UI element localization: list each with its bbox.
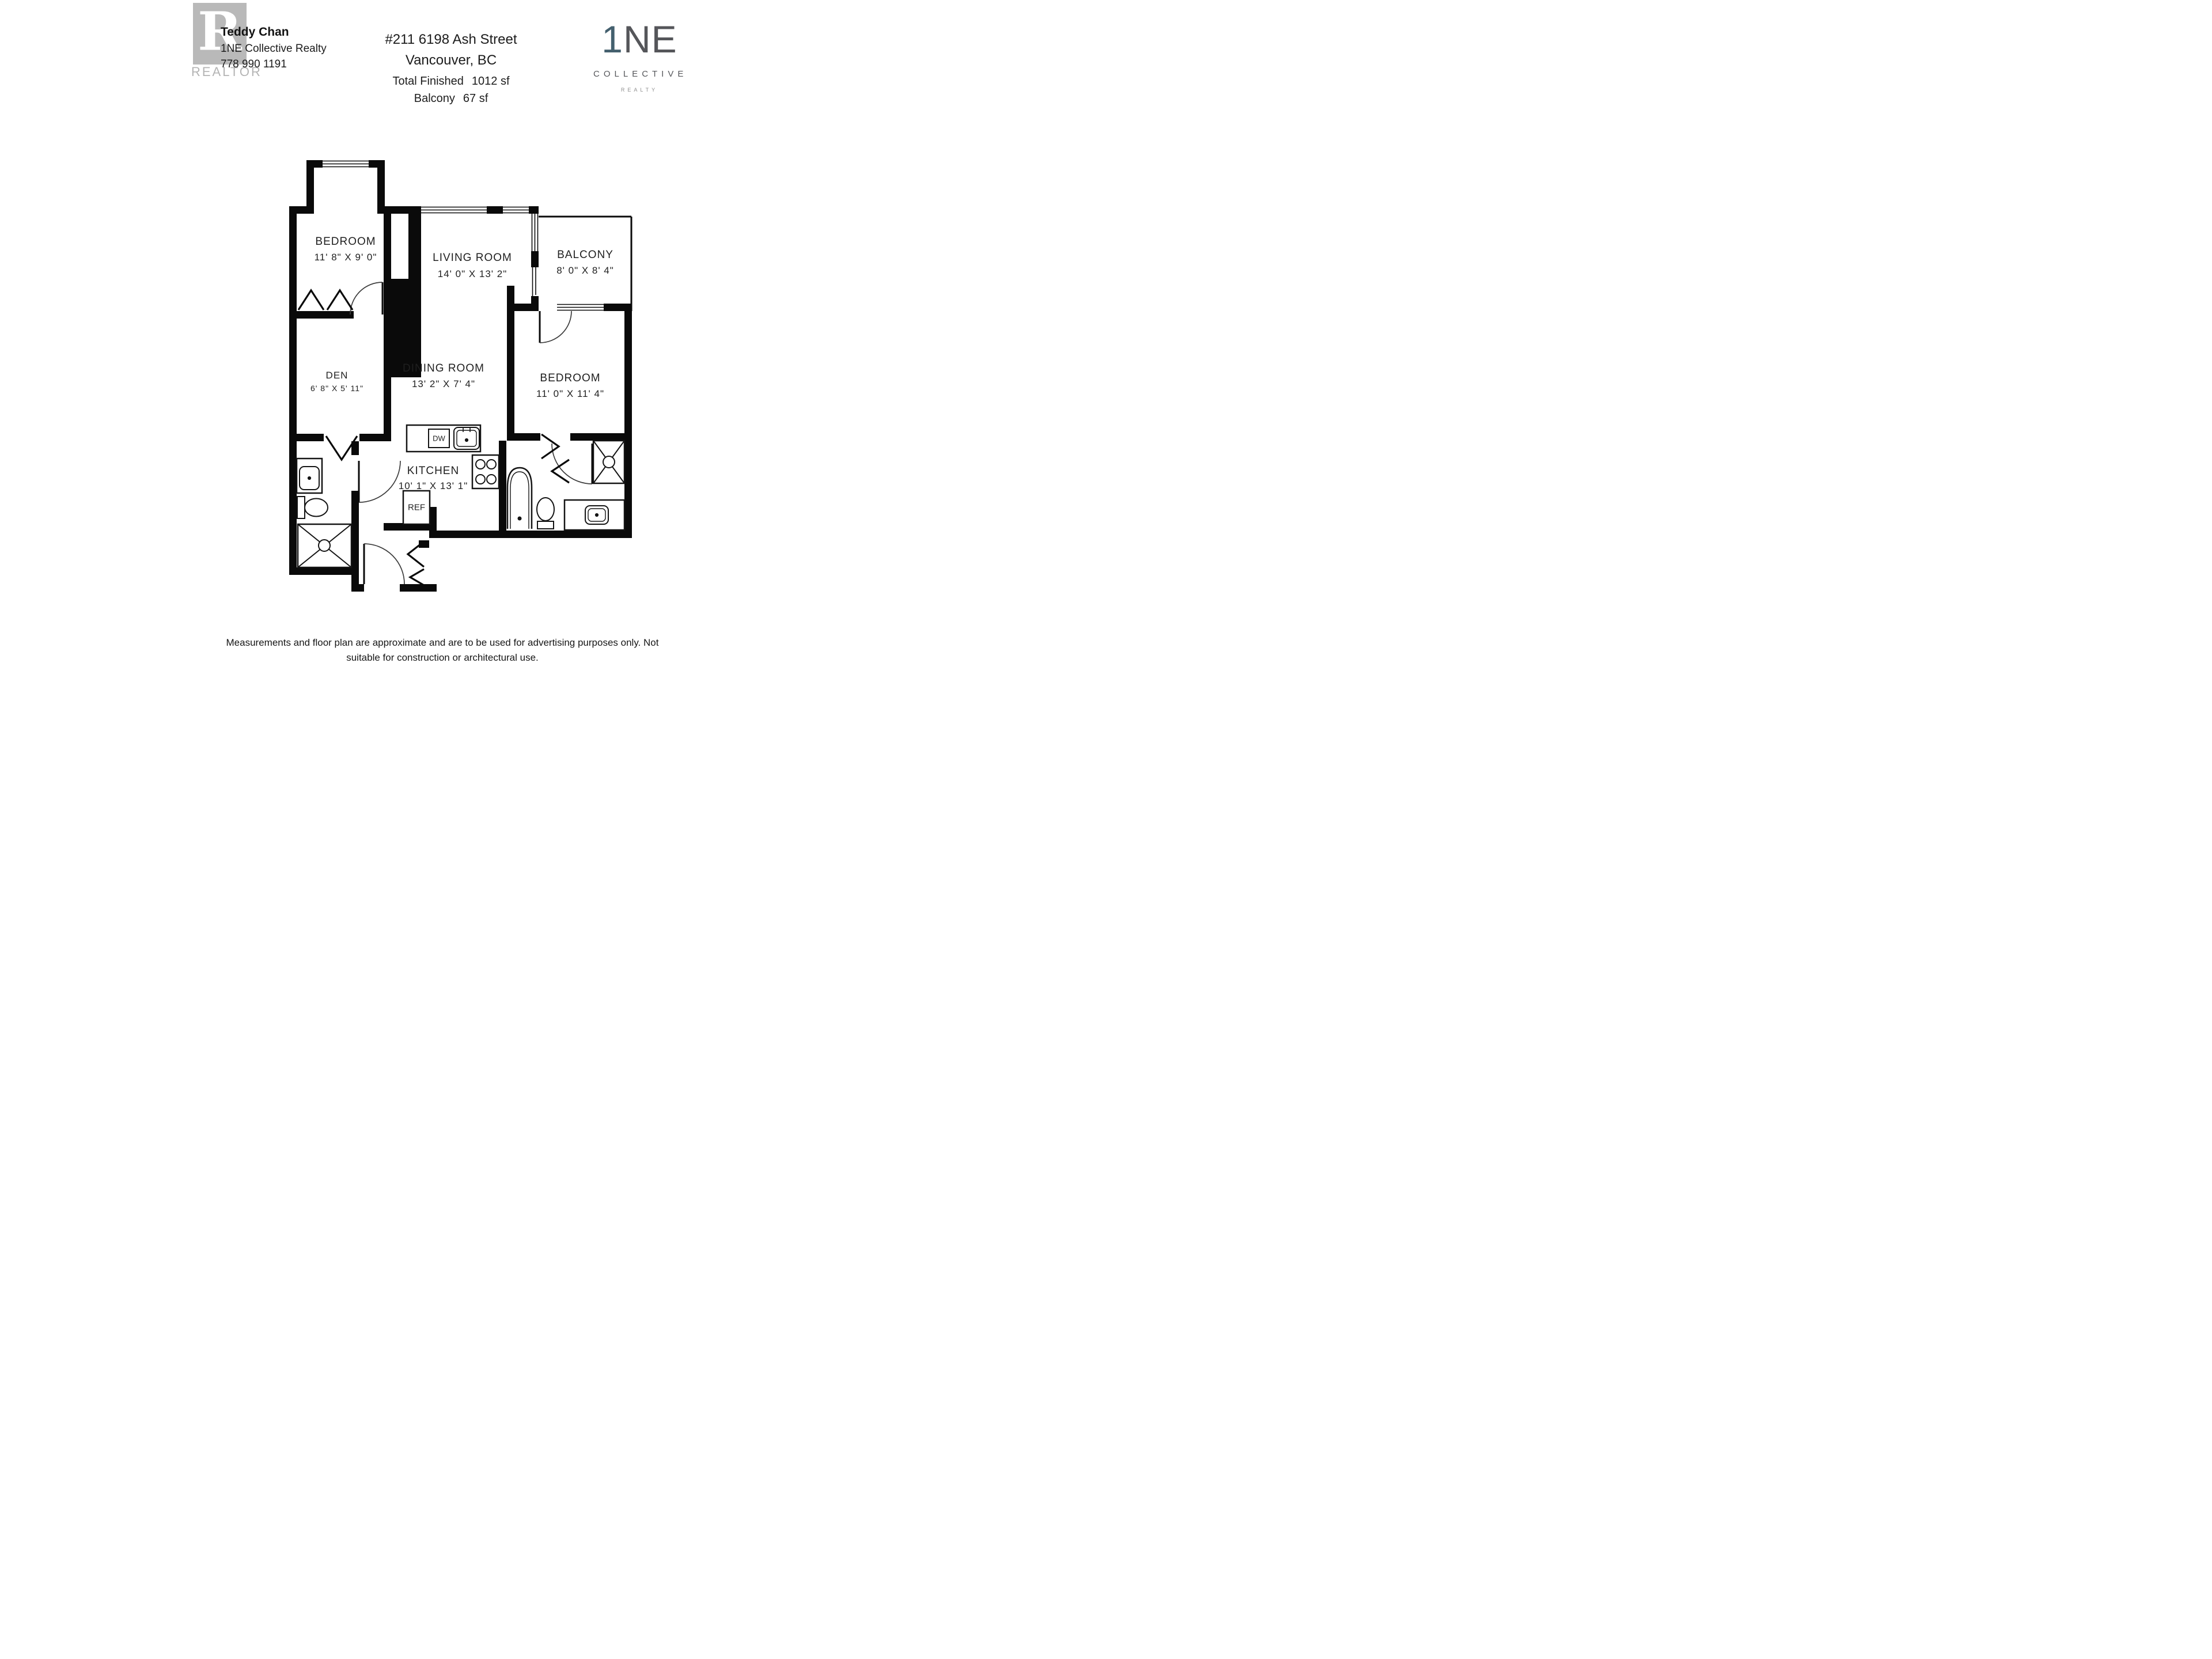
room-label-bedroom-2: BEDROOM bbox=[540, 372, 600, 385]
disclaimer-line-1: Measurements and floor plan are approxim… bbox=[221, 635, 664, 664]
room-dims-den: 6' 8" X 5' 11" bbox=[310, 384, 363, 393]
room-label-balcony: BALCONY bbox=[557, 249, 613, 262]
shower-right-drain bbox=[603, 456, 615, 468]
toilet-right-bowl bbox=[537, 498, 554, 521]
shower-left-drain bbox=[319, 540, 330, 551]
floor-plan-page: R REALTOR Teddy Chan 1NE Collective Real… bbox=[0, 0, 885, 664]
stove bbox=[472, 455, 499, 488]
floor-plan-drawing bbox=[0, 0, 885, 664]
room-label-kitchen: KITCHEN bbox=[407, 465, 459, 478]
room-dims-bedroom-2: 11' 0" X 11' 4" bbox=[536, 388, 604, 400]
room-dims-living-room: 14' 0" X 13' 2" bbox=[438, 268, 507, 280]
disclaimer: Measurements and floor plan are approxim… bbox=[221, 635, 664, 664]
toilet-left-tank bbox=[297, 497, 305, 518]
refrigerator-label: REF bbox=[408, 503, 425, 513]
right-bathroom-fixtures bbox=[507, 441, 624, 530]
kitchen-faucet bbox=[465, 438, 468, 441]
room-dims-kitchen: 10' 1" X 13' 1" bbox=[399, 480, 468, 492]
room-dims-dining-room: 13' 2" X 7' 4" bbox=[412, 378, 475, 390]
room-dims-bedroom-1: 11' 8" X 9' 0" bbox=[315, 252, 377, 263]
room-label-bedroom-1: BEDROOM bbox=[315, 236, 376, 248]
balcony-outline bbox=[539, 217, 631, 311]
room-label-den: DEN bbox=[326, 370, 349, 381]
room-label-living-room: LIVING ROOM bbox=[433, 252, 512, 264]
left-bathroom-fixtures bbox=[297, 459, 351, 567]
toilet-right-tank bbox=[537, 521, 554, 529]
dishwasher-label: DW bbox=[433, 434, 445, 443]
bathtub-drain bbox=[518, 517, 521, 520]
toilet-left-bowl bbox=[305, 499, 328, 517]
room-label-dining-room: DINING ROOM bbox=[403, 362, 484, 375]
room-dims-balcony: 8' 0" X 8' 4" bbox=[556, 265, 614, 276]
